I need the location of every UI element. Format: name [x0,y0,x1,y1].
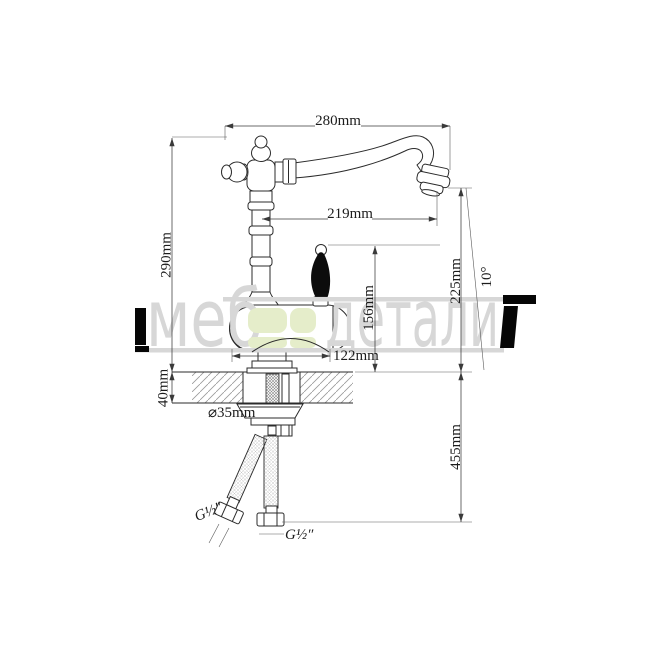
dimension-label-122: 122mm [333,348,379,364]
watermark-black-mark-left [135,308,146,345]
dimension-label-290: 290mm [159,232,175,278]
watermark-text-left: меб [146,273,263,365]
finial-ball-upper [255,136,267,148]
watermark-black-mark-right-breve [503,295,536,304]
countertop-hatch-left [192,373,243,404]
dimension-label-156: 156mm [361,285,377,331]
spout [294,136,452,199]
dimension-label-angle: 10° [479,267,495,288]
dimension-label-hole-diameter: ⌀35mm [208,405,256,421]
dimension-label-40: 40mm [156,369,172,408]
technical-drawing-canvas: меб детали [0,0,650,650]
countertop-hatch-right [300,373,353,404]
dimension-label-225: 225mm [448,258,464,304]
hose-right-nut [257,506,284,526]
watermark-black-mark-right [500,306,518,348]
countertop [172,372,353,403]
dimension-label-219: 219mm [327,206,373,222]
hose-right [264,436,278,508]
faucet-head [222,136,297,191]
hose-left [227,434,267,502]
dimension-label-280: 280mm [315,113,361,129]
thread-label-right: G½″ [285,527,314,543]
dimension-label-455: 455mm [448,424,464,470]
supply-hoses [209,434,284,547]
watermark-green-tiles [248,308,316,348]
mounting-shank [266,374,289,403]
